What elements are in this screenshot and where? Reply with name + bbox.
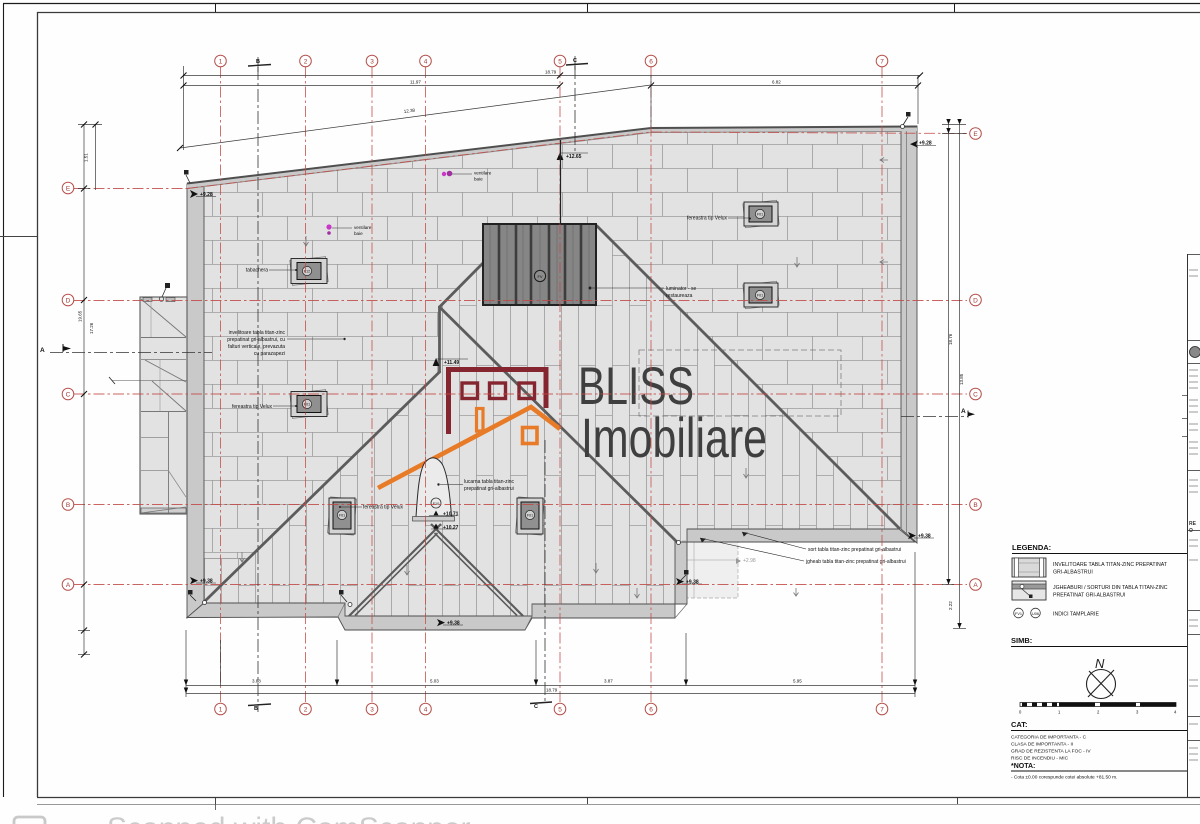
svg-text:D: D	[973, 297, 978, 304]
svg-text:GRAD DE REZISTENTA LA FOC - IV: GRAD DE REZISTENTA LA FOC - IV	[1011, 749, 1091, 755]
svg-text:6.82: 6.82	[772, 80, 781, 85]
svg-text:1.51: 1.51	[84, 153, 89, 162]
svg-text:1: 1	[219, 706, 223, 713]
svg-text:+10.27: +10.27	[443, 525, 459, 531]
svg-text:+9.38: +9.38	[447, 621, 460, 627]
svg-text:4: 4	[424, 706, 428, 713]
svg-text:INDICI TAMPLARIE: INDICI TAMPLARIE	[1053, 612, 1099, 618]
svg-text:fereastra tip Velux: fereastra tip Velux	[687, 216, 728, 222]
svg-text:C: C	[66, 391, 71, 398]
svg-text:CLASA DE IMPORTANTA - II: CLASA DE IMPORTANTA - II	[1011, 742, 1073, 748]
svg-text:+9.38: +9.38	[200, 579, 213, 585]
svg-text:19.65: 19.65	[78, 310, 83, 322]
svg-text:RISC DE INCENDIU - MIC: RISC DE INCENDIU - MIC	[1011, 756, 1069, 762]
svg-text:O: O	[1189, 528, 1193, 534]
svg-text:FV1: FV1	[1015, 612, 1022, 616]
svg-text:D: D	[66, 297, 71, 304]
svg-text:11.97: 11.97	[410, 80, 421, 85]
svg-text:17.26: 17.26	[89, 322, 94, 334]
svg-text:6: 6	[649, 706, 653, 713]
svg-text:5: 5	[558, 58, 562, 65]
svg-text:C: C	[973, 391, 978, 398]
svg-text:+10.71: +10.71	[443, 512, 459, 518]
svg-text:falturi verticale, prevazuta: falturi verticale, prevazuta	[228, 344, 285, 350]
svg-text:B: B	[254, 706, 258, 712]
svg-text:+11.49: +11.49	[444, 360, 459, 366]
svg-text:JGHEABURI / SORTURI DIN TABLA: JGHEABURI / SORTURI DIN TABLA TITAN-ZINC	[1053, 585, 1168, 591]
svg-text:prepatinat gri-albastrui: prepatinat gri-albastrui	[464, 486, 514, 492]
svg-text:3: 3	[370, 58, 374, 65]
svg-text:Imobiliare: Imobiliare	[581, 406, 767, 469]
svg-text:5.03: 5.03	[430, 679, 439, 684]
svg-text:A: A	[66, 582, 71, 589]
svg-text:RE: RE	[1189, 521, 1197, 527]
svg-text:6: 6	[649, 58, 653, 65]
svg-text:F12: F12	[304, 270, 310, 274]
svg-text:*NOTA:: *NOTA:	[1011, 763, 1035, 770]
svg-text:cu parazapezi: cu parazapezi	[254, 351, 285, 357]
svg-text:luminator - se: luminator - se	[666, 286, 697, 292]
svg-text:A: A	[961, 408, 966, 415]
svg-text:7: 7	[880, 58, 884, 65]
svg-text:4: 4	[424, 58, 428, 65]
svg-text:3.88: 3.88	[252, 679, 261, 684]
svg-text:E: E	[973, 131, 978, 138]
svg-text:C: C	[534, 704, 538, 710]
svg-text:2.22: 2.22	[948, 601, 953, 610]
svg-text:F01: F01	[339, 514, 345, 518]
svg-text:N: N	[1095, 656, 1105, 671]
svg-text:GRI-ALBASTRUI: GRI-ALBASTRUI	[1053, 570, 1093, 576]
svg-text:B: B	[66, 502, 70, 509]
svg-text:Scanned with CamScanner: Scanned with CamScanner	[107, 812, 471, 824]
svg-text:+9.38: +9.38	[918, 534, 931, 540]
svg-text:A: A	[973, 582, 978, 589]
svg-text:baie: baie	[354, 231, 363, 236]
svg-text:E: E	[66, 185, 71, 192]
svg-text:3: 3	[370, 706, 374, 713]
svg-text:ventilare: ventilare	[474, 171, 492, 176]
svg-text:2: 2	[304, 706, 308, 713]
svg-text:+9.28: +9.28	[200, 192, 213, 198]
svg-text:SIMB:: SIMB:	[1011, 636, 1032, 645]
svg-text:U06: U06	[1032, 612, 1039, 616]
svg-text:PREFATINAT GRI-ALBASTRUI: PREFATINAT GRI-ALBASTRUI	[1053, 593, 1125, 599]
svg-text:7: 7	[880, 706, 884, 713]
svg-text:LEGENDA:: LEGENDA:	[1012, 543, 1051, 552]
svg-text:5: 5	[558, 706, 562, 713]
svg-text:baie: baie	[474, 177, 483, 182]
svg-text:F01: F01	[304, 403, 310, 407]
svg-text:+12.65: +12.65	[566, 154, 582, 160]
svg-text:3.87: 3.87	[604, 679, 613, 684]
svg-text:A: A	[40, 347, 45, 354]
svg-text:INVELITOARE TABLA TITAN-ZINC P: INVELITOARE TABLA TITAN-ZINC PREPATINAT	[1053, 562, 1168, 568]
svg-text:CATEGORIA DE IMPORTANTA - C: CATEGORIA DE IMPORTANTA - C	[1011, 735, 1087, 741]
svg-text:F01: F01	[527, 514, 533, 518]
svg-text:ventilare: ventilare	[354, 225, 372, 230]
svg-text:18.79: 18.79	[546, 688, 558, 693]
svg-text:CAT:: CAT:	[1011, 720, 1028, 729]
svg-text:B: B	[973, 502, 977, 509]
svg-text:sort tabla titan-zinc prepatin: sort tabla titan-zinc prepatinat gri-alb…	[808, 547, 901, 553]
svg-text:18.79: 18.79	[545, 70, 557, 75]
svg-text:tabachera: tabachera	[246, 268, 268, 274]
svg-text:5.95: 5.95	[793, 679, 802, 684]
svg-text:2: 2	[304, 58, 308, 65]
svg-text:fereastra tip Velux: fereastra tip Velux	[363, 505, 404, 511]
svg-text:F01: F01	[757, 294, 763, 298]
svg-text:prepatinat gri-albastrui, cu: prepatinat gri-albastrui, cu	[227, 337, 285, 343]
svg-text:+2.98: +2.98	[743, 558, 756, 564]
svg-text:13.85: 13.85	[959, 373, 964, 385]
svg-text:F01: F01	[757, 213, 763, 217]
svg-text:- Cota ±0.00 corespunde cotei: - Cota ±0.00 corespunde cotei absolute +…	[1011, 775, 1118, 781]
svg-text:F10: F10	[433, 502, 440, 506]
svg-text:1: 1	[219, 58, 223, 65]
svg-text:FV: FV	[537, 274, 542, 279]
svg-text:18.76: 18.76	[948, 333, 953, 345]
svg-text:fereastra tip Velux: fereastra tip Velux	[232, 404, 273, 410]
svg-text:invelitoare tabla titan-zinc: invelitoare tabla titan-zinc	[229, 330, 286, 336]
svg-text:jgheab tabla titan-zinc prepat: jgheab tabla titan-zinc prepatinat gri-a…	[805, 559, 906, 565]
svg-text:restaureaza: restaureaza	[666, 293, 693, 299]
svg-text:lucarna tabla titan-zinc: lucarna tabla titan-zinc	[464, 479, 515, 485]
